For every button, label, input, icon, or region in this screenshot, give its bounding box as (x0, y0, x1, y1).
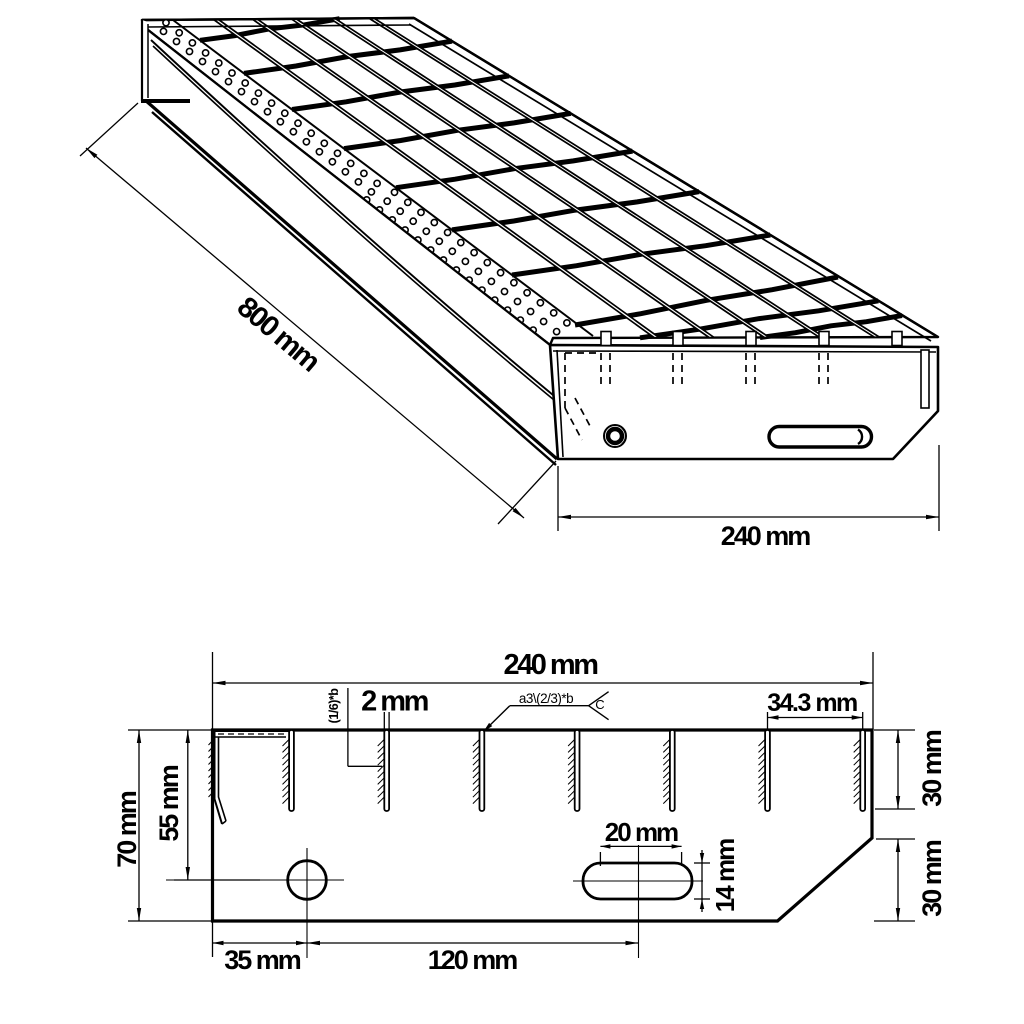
svg-text:20 mm: 20 mm (605, 817, 678, 847)
svg-text:30 mm: 30 mm (917, 840, 947, 917)
svg-text:(1/6)*b: (1/6)*b (327, 688, 341, 724)
svg-text:30 mm: 30 mm (917, 730, 947, 807)
svg-text:240 mm: 240 mm (721, 521, 811, 551)
svg-text:55 mm: 55 mm (154, 765, 184, 842)
svg-text:120 mm: 120 mm (428, 945, 518, 975)
svg-text:2 mm: 2 mm (361, 686, 427, 718)
svg-text:70 mm: 70 mm (112, 791, 142, 868)
svg-text:35 mm: 35 mm (224, 945, 301, 975)
svg-text:a3\(2/3)*b: a3\(2/3)*b (519, 691, 573, 706)
svg-text:C: C (595, 697, 604, 712)
svg-text:14 mm: 14 mm (710, 839, 740, 912)
svg-text:34.3 mm: 34.3 mm (767, 689, 857, 717)
svg-text:240 mm: 240 mm (503, 649, 597, 681)
